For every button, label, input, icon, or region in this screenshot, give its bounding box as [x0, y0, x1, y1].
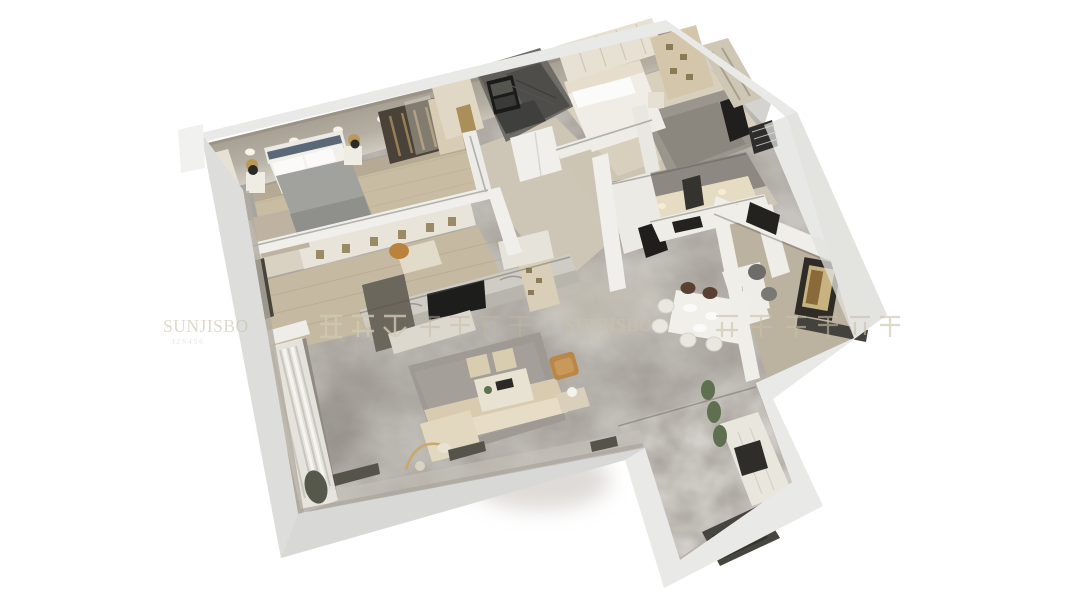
svg-text:SUNJISBO: SUNJISBO	[163, 316, 249, 336]
svg-text:I 2 S 4 5 6: I 2 S 4 5 6	[172, 337, 203, 346]
svg-text:SUNHSBO: SUNHSBO	[565, 315, 653, 335]
svg-text:I 2 S 4 5: I 2 S 4 5	[582, 336, 608, 345]
